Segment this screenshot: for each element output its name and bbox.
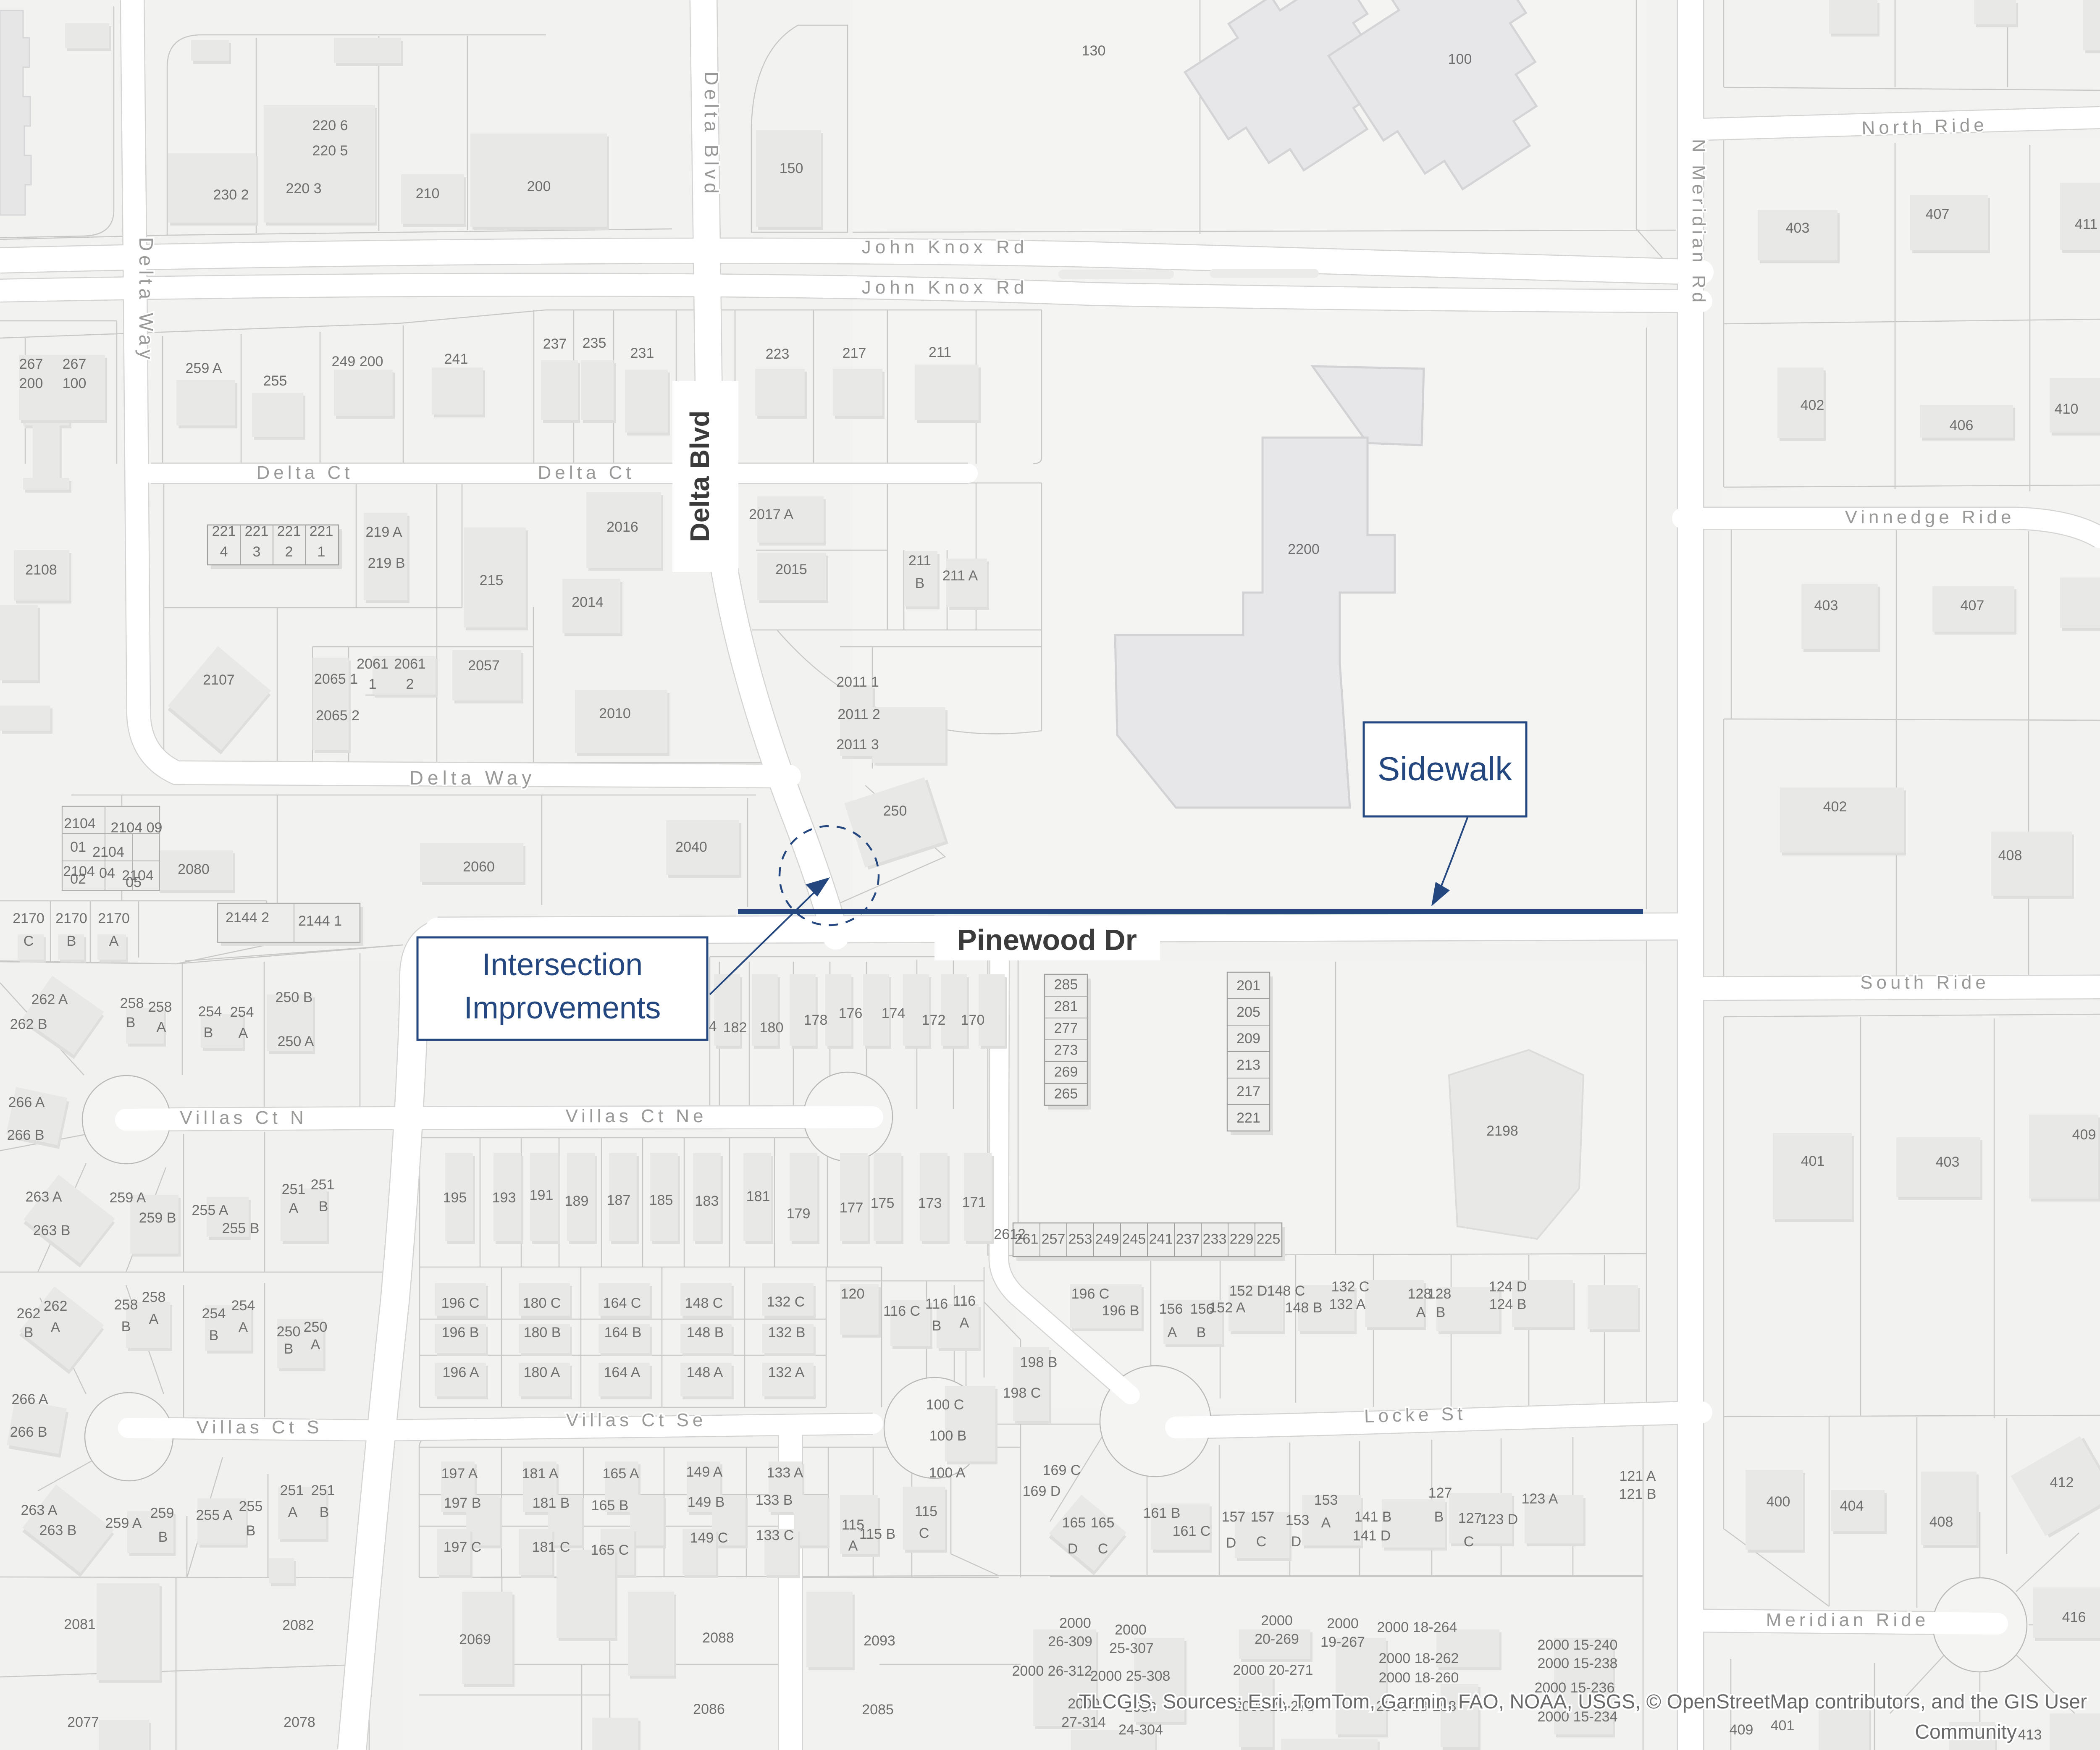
svg-text:233: 233 — [1203, 1231, 1227, 1247]
svg-text:211: 211 — [929, 344, 951, 360]
svg-text:115 B: 115 B — [859, 1526, 895, 1542]
svg-text:128: 128 — [1428, 1286, 1452, 1302]
svg-text:Delta Way: Delta Way — [135, 237, 157, 363]
svg-text:170: 170 — [961, 1012, 985, 1028]
svg-text:C: C — [1464, 1534, 1474, 1550]
svg-text:255 A: 255 A — [196, 1507, 233, 1523]
svg-text:267: 267 — [19, 356, 43, 372]
svg-text:133 C: 133 C — [756, 1527, 794, 1543]
svg-text:100 A: 100 A — [929, 1465, 966, 1481]
svg-text:408: 408 — [1929, 1514, 1953, 1530]
svg-text:116: 116 — [925, 1296, 948, 1312]
svg-text:2017 A: 2017 A — [749, 506, 793, 522]
svg-text:John Knox Rd: John Knox Rd — [862, 237, 1028, 257]
svg-text:Delta Way: Delta Way — [409, 767, 535, 789]
svg-text:2015: 2015 — [775, 561, 807, 577]
svg-text:209: 209 — [1236, 1031, 1260, 1047]
svg-text:165: 165 — [1091, 1515, 1115, 1531]
svg-text:A: A — [848, 1538, 858, 1554]
svg-text:189: 189 — [565, 1193, 589, 1209]
svg-text:100: 100 — [63, 375, 87, 391]
svg-text:B: B — [209, 1328, 219, 1343]
svg-text:180 A: 180 A — [524, 1364, 560, 1380]
svg-text:2000 15-238: 2000 15-238 — [1538, 1656, 1618, 1671]
svg-text:133 A: 133 A — [767, 1465, 803, 1481]
svg-text:258: 258 — [120, 995, 144, 1011]
svg-text:169 D: 169 D — [1023, 1483, 1061, 1499]
svg-text:A: A — [1321, 1515, 1331, 1531]
svg-text:2: 2 — [285, 544, 293, 560]
svg-text:2060: 2060 — [463, 859, 495, 875]
svg-text:Delta Ct: Delta Ct — [538, 462, 635, 483]
svg-text:B: B — [246, 1523, 256, 1539]
svg-text:185: 185 — [649, 1192, 673, 1208]
svg-text:121 B: 121 B — [1619, 1486, 1656, 1502]
svg-text:B: B — [126, 1015, 136, 1031]
svg-text:1: 1 — [369, 676, 377, 692]
svg-text:180 B: 180 B — [524, 1325, 561, 1341]
svg-text:2061: 2061 — [357, 656, 388, 672]
svg-text:220 3: 220 3 — [286, 181, 321, 197]
svg-text:180 C: 180 C — [523, 1295, 561, 1311]
svg-text:181: 181 — [746, 1189, 770, 1204]
svg-text:402: 402 — [1823, 799, 1847, 815]
svg-text:254: 254 — [198, 1004, 222, 1020]
svg-text:121 A: 121 A — [1620, 1468, 1656, 1484]
svg-text:B: B — [158, 1529, 168, 1545]
svg-text:266 A: 266 A — [8, 1094, 45, 1110]
svg-text:230 2: 230 2 — [213, 187, 249, 203]
svg-text:177: 177 — [840, 1200, 864, 1216]
svg-text:250 B: 250 B — [276, 989, 313, 1005]
svg-text:250: 250 — [304, 1319, 328, 1335]
svg-text:259: 259 — [150, 1505, 174, 1521]
svg-text:193: 193 — [492, 1190, 516, 1206]
svg-text:221: 221 — [1236, 1110, 1260, 1126]
svg-text:404: 404 — [1840, 1498, 1864, 1514]
svg-text:409: 409 — [1730, 1722, 1753, 1738]
svg-text:Delta Ct: Delta Ct — [257, 462, 354, 483]
svg-text:2011 2: 2011 2 — [837, 706, 880, 722]
svg-text:Villas Ct Se: Villas Ct Se — [566, 1410, 707, 1430]
svg-text:2200: 2200 — [1288, 541, 1320, 557]
svg-text:123 A: 123 A — [1522, 1491, 1558, 1507]
svg-text:250: 250 — [277, 1324, 301, 1340]
svg-text:North Ride: North Ride — [1861, 115, 1988, 139]
svg-text:258: 258 — [148, 999, 172, 1015]
svg-text:221: 221 — [310, 523, 333, 539]
svg-text:148 B: 148 B — [1285, 1300, 1323, 1316]
svg-text:2014: 2014 — [572, 594, 604, 610]
svg-text:B: B — [1434, 1509, 1444, 1525]
svg-text:2104: 2104 — [92, 844, 124, 860]
svg-text:266 B: 266 B — [10, 1424, 47, 1440]
svg-text:2011 1: 2011 1 — [836, 674, 879, 690]
svg-text:2000 26-312: 2000 26-312 — [1012, 1663, 1092, 1679]
svg-text:25-307: 25-307 — [1109, 1640, 1154, 1656]
svg-text:259 A: 259 A — [105, 1515, 142, 1531]
svg-text:164 C: 164 C — [603, 1295, 641, 1311]
svg-text:217: 217 — [1236, 1084, 1260, 1099]
svg-text:141 D: 141 D — [1353, 1528, 1391, 1544]
svg-text:196 B: 196 B — [442, 1325, 479, 1341]
svg-text:403: 403 — [1786, 220, 1810, 236]
svg-text:411: 411 — [2075, 216, 2097, 232]
svg-text:100 C: 100 C — [926, 1397, 964, 1413]
svg-text:B: B — [915, 575, 925, 591]
svg-text:133 B: 133 B — [756, 1492, 793, 1508]
svg-text:A: A — [960, 1315, 969, 1331]
svg-text:180: 180 — [760, 1020, 784, 1036]
svg-text:262: 262 — [17, 1306, 41, 1322]
svg-text:04: 04 — [99, 865, 115, 881]
svg-text:412: 412 — [2050, 1475, 2074, 1490]
svg-text:2065 2: 2065 2 — [316, 708, 360, 724]
svg-text:157: 157 — [1222, 1509, 1246, 1525]
svg-text:2104 09: 2104 09 — [111, 820, 163, 836]
svg-text:259 A: 259 A — [110, 1190, 146, 1206]
svg-text:124 B: 124 B — [1489, 1296, 1527, 1312]
svg-text:A: A — [311, 1337, 320, 1353]
svg-text:148 B: 148 B — [687, 1325, 724, 1341]
svg-text:254: 254 — [230, 1004, 254, 1020]
svg-text:20-269: 20-269 — [1255, 1631, 1299, 1647]
svg-text:132 A: 132 A — [1329, 1296, 1366, 1312]
svg-text:255: 255 — [239, 1498, 263, 1514]
svg-text:2088: 2088 — [702, 1630, 734, 1646]
svg-text:C: C — [1098, 1541, 1108, 1557]
svg-text:26-309: 26-309 — [1048, 1634, 1092, 1650]
svg-text:148 C: 148 C — [1267, 1283, 1305, 1299]
svg-text:Sidewalk: Sidewalk — [1378, 750, 1512, 787]
svg-text:250 A: 250 A — [278, 1034, 314, 1049]
svg-text:2000: 2000 — [1327, 1616, 1359, 1632]
svg-text:2170: 2170 — [55, 910, 87, 926]
svg-text:251: 251 — [311, 1482, 335, 1498]
svg-text:196 C: 196 C — [1071, 1286, 1110, 1302]
svg-text:D: D — [1068, 1541, 1078, 1557]
svg-text:259 B: 259 B — [139, 1210, 176, 1226]
svg-text:221: 221 — [245, 523, 269, 539]
svg-text:127: 127 — [1428, 1485, 1452, 1501]
svg-text:249: 249 — [1095, 1231, 1119, 1247]
svg-text:01: 01 — [70, 839, 86, 855]
svg-text:400: 400 — [1767, 1494, 1790, 1510]
svg-text:171: 171 — [962, 1194, 986, 1210]
svg-text:Delta Blvd: Delta Blvd — [685, 411, 715, 542]
svg-text:201: 201 — [1236, 978, 1260, 994]
svg-text:2144 1: 2144 1 — [298, 913, 342, 929]
svg-text:2170: 2170 — [98, 910, 130, 926]
svg-text:A: A — [289, 1200, 299, 1216]
svg-text:410: 410 — [2055, 401, 2079, 417]
svg-text:Villas Ct N: Villas Ct N — [180, 1107, 307, 1128]
svg-text:196 C: 196 C — [441, 1295, 480, 1311]
svg-text:Villas Ct S: Villas Ct S — [196, 1417, 323, 1438]
svg-text:164 A: 164 A — [604, 1364, 640, 1380]
svg-text:2040: 2040 — [675, 839, 707, 855]
svg-text:220 5: 220 5 — [312, 143, 348, 159]
svg-text:19-267: 19-267 — [1320, 1634, 1365, 1650]
svg-text:2198: 2198 — [1486, 1123, 1518, 1139]
svg-text:176: 176 — [839, 1005, 863, 1021]
svg-text:2612: 2612 — [994, 1226, 1026, 1242]
svg-text:B: B — [320, 1504, 329, 1520]
svg-text:A: A — [109, 933, 119, 949]
svg-text:2104: 2104 — [64, 816, 96, 832]
svg-text:3: 3 — [253, 544, 261, 560]
svg-text:215: 215 — [480, 572, 504, 588]
svg-text:161 C: 161 C — [1173, 1523, 1211, 1539]
svg-text:2016: 2016 — [606, 519, 638, 535]
svg-text:165: 165 — [1062, 1515, 1086, 1531]
svg-text:116: 116 — [953, 1293, 976, 1309]
svg-text:2010: 2010 — [599, 706, 631, 722]
svg-text:241: 241 — [444, 351, 468, 367]
svg-text:TLCGIS, Sources: Esri, TomTom,: TLCGIS, Sources: Esri, TomTom, Garmin, F… — [1079, 1691, 2087, 1713]
svg-text:403: 403 — [1814, 598, 1838, 614]
svg-text:2000 18-264: 2000 18-264 — [1377, 1619, 1457, 1635]
svg-text:251: 251 — [280, 1482, 304, 1498]
svg-text:B: B — [121, 1319, 131, 1335]
svg-text:124 D: 124 D — [1489, 1279, 1527, 1295]
svg-text:B: B — [24, 1325, 34, 1341]
svg-text:237: 237 — [543, 336, 567, 352]
svg-text:150: 150 — [780, 160, 803, 176]
svg-text:200: 200 — [527, 178, 551, 194]
svg-text:169 C: 169 C — [1043, 1462, 1081, 1478]
svg-text:2000: 2000 — [1059, 1615, 1091, 1631]
svg-text:120: 120 — [841, 1286, 865, 1302]
svg-text:2081: 2081 — [64, 1616, 96, 1632]
svg-text:183: 183 — [695, 1193, 719, 1209]
svg-text:245: 245 — [1122, 1231, 1146, 1247]
svg-text:John Knox Rd: John Knox Rd — [862, 277, 1028, 298]
svg-text:2000 20-271: 2000 20-271 — [1233, 1662, 1313, 1678]
svg-text:196 A: 196 A — [443, 1364, 479, 1380]
svg-text:406: 406 — [1950, 417, 1974, 433]
svg-text:156: 156 — [1159, 1301, 1183, 1317]
svg-text:221: 221 — [212, 523, 236, 539]
svg-text:A: A — [288, 1504, 298, 1520]
svg-text:257: 257 — [1042, 1231, 1066, 1247]
svg-text:255: 255 — [263, 373, 287, 389]
svg-text:B: B — [284, 1341, 294, 1357]
svg-text:B: B — [1436, 1304, 1446, 1320]
svg-text:263 B: 263 B — [33, 1223, 71, 1238]
svg-text:229: 229 — [1230, 1231, 1254, 1247]
svg-text:409: 409 — [2072, 1127, 2096, 1143]
svg-text:251: 251 — [282, 1181, 306, 1197]
svg-text:149 C: 149 C — [690, 1530, 728, 1546]
svg-text:262: 262 — [44, 1298, 68, 1314]
svg-text:A: A — [1416, 1304, 1426, 1320]
svg-text:407: 407 — [1961, 598, 1984, 614]
svg-text:191: 191 — [530, 1187, 554, 1203]
svg-text:225: 225 — [1257, 1231, 1281, 1247]
svg-text:172: 172 — [922, 1012, 946, 1028]
svg-text:217: 217 — [843, 345, 866, 361]
svg-text:2000 25-308: 2000 25-308 — [1090, 1668, 1171, 1684]
svg-text:132 A: 132 A — [768, 1364, 805, 1380]
svg-text:211: 211 — [908, 553, 931, 569]
svg-text:2077: 2077 — [67, 1714, 99, 1730]
svg-text:2000: 2000 — [1115, 1622, 1147, 1638]
svg-text:267: 267 — [63, 356, 87, 372]
svg-text:413: 413 — [2018, 1727, 2042, 1743]
svg-text:141 B: 141 B — [1354, 1509, 1392, 1525]
svg-text:175: 175 — [871, 1195, 895, 1211]
svg-text:181 A: 181 A — [522, 1466, 559, 1482]
svg-text:181 B: 181 B — [533, 1495, 570, 1511]
svg-text:24-304: 24-304 — [1118, 1722, 1163, 1738]
svg-text:266 B: 266 B — [7, 1127, 45, 1143]
svg-text:263 B: 263 B — [39, 1522, 77, 1538]
svg-text:2057: 2057 — [468, 658, 500, 674]
svg-text:285: 285 — [1054, 976, 1078, 992]
svg-text:161 B: 161 B — [1143, 1505, 1181, 1521]
svg-text:223: 223 — [766, 346, 790, 362]
svg-text:178: 178 — [804, 1012, 828, 1028]
svg-text:115: 115 — [915, 1503, 937, 1519]
svg-text:165 C: 165 C — [591, 1542, 629, 1558]
svg-text:197 B: 197 B — [444, 1495, 481, 1511]
svg-text:1: 1 — [318, 544, 325, 560]
svg-text:149 A: 149 A — [686, 1464, 723, 1480]
svg-text:262 A: 262 A — [31, 992, 68, 1007]
svg-text:402: 402 — [1801, 397, 1824, 413]
svg-text:B: B — [204, 1025, 213, 1041]
svg-text:277: 277 — [1054, 1020, 1078, 1036]
svg-text:Meridian Ride: Meridian Ride — [1766, 1610, 1929, 1630]
svg-text:241: 241 — [1149, 1231, 1173, 1247]
svg-text:401: 401 — [1801, 1153, 1825, 1169]
svg-text:219 B: 219 B — [368, 555, 405, 571]
svg-text:2069: 2069 — [459, 1632, 491, 1648]
svg-text:2065 1: 2065 1 — [314, 671, 358, 687]
svg-text:255 A: 255 A — [192, 1202, 228, 1218]
svg-text:196 B: 196 B — [1102, 1303, 1139, 1319]
svg-text:Community: Community — [1915, 1721, 2017, 1743]
svg-text:198 B: 198 B — [1020, 1354, 1058, 1370]
svg-text:403: 403 — [1936, 1154, 1960, 1170]
svg-text:148 A: 148 A — [687, 1364, 723, 1380]
svg-text:250: 250 — [883, 803, 907, 819]
svg-text:123 D: 123 D — [1480, 1511, 1518, 1527]
svg-text:164 B: 164 B — [604, 1325, 642, 1341]
svg-text:152 A: 152 A — [1209, 1300, 1246, 1316]
svg-text:A: A — [51, 1320, 60, 1335]
svg-text:D: D — [1291, 1534, 1302, 1550]
svg-text:179: 179 — [787, 1206, 811, 1222]
svg-text:2000 18-260: 2000 18-260 — [1379, 1670, 1459, 1686]
svg-text:258: 258 — [114, 1297, 138, 1313]
svg-text:2086: 2086 — [693, 1701, 725, 1717]
svg-text:269: 269 — [1054, 1064, 1078, 1080]
svg-text:A: A — [1168, 1325, 1177, 1341]
svg-text:265: 265 — [1054, 1086, 1078, 1102]
svg-text:2082: 2082 — [282, 1617, 314, 1633]
svg-text:148 C: 148 C — [685, 1295, 723, 1311]
svg-text:259 A: 259 A — [186, 360, 222, 376]
svg-text:263 A: 263 A — [26, 1189, 62, 1205]
svg-text:C: C — [24, 933, 34, 949]
svg-text:205: 205 — [1236, 1004, 1260, 1020]
svg-text:181 C: 181 C — [532, 1539, 570, 1555]
svg-text:198 C: 198 C — [1003, 1385, 1041, 1401]
svg-text:2000 18-262: 2000 18-262 — [1379, 1650, 1459, 1666]
svg-text:132 B: 132 B — [768, 1325, 806, 1341]
svg-text:132 C: 132 C — [767, 1294, 805, 1310]
svg-text:220 6: 220 6 — [312, 118, 348, 134]
svg-text:127: 127 — [1458, 1510, 1482, 1526]
svg-text:4: 4 — [220, 544, 228, 560]
svg-text:B: B — [319, 1199, 328, 1215]
svg-text:197 C: 197 C — [444, 1539, 482, 1555]
svg-text:2085: 2085 — [862, 1702, 894, 1718]
svg-text:254: 254 — [231, 1298, 255, 1314]
svg-text:C: C — [1256, 1534, 1267, 1550]
svg-text:100: 100 — [1448, 51, 1472, 67]
svg-text:2080: 2080 — [178, 861, 210, 877]
svg-text:153: 153 — [1286, 1512, 1310, 1528]
svg-text:2093: 2093 — [864, 1633, 895, 1649]
svg-text:D: D — [1226, 1535, 1236, 1551]
svg-text:263 A: 263 A — [21, 1502, 58, 1518]
svg-text:231: 231 — [630, 345, 654, 361]
svg-text:255 B: 255 B — [222, 1220, 260, 1236]
svg-text:02: 02 — [70, 871, 86, 887]
svg-text:187: 187 — [607, 1192, 631, 1208]
svg-text:165 B: 165 B — [591, 1498, 629, 1514]
svg-text:251: 251 — [311, 1177, 335, 1193]
svg-text:174: 174 — [882, 1005, 906, 1021]
svg-text:Delta Blvd: Delta Blvd — [701, 71, 722, 197]
svg-text:132 C: 132 C — [1331, 1279, 1370, 1295]
svg-text:05: 05 — [126, 874, 142, 890]
svg-text:South Ride: South Ride — [1860, 972, 1990, 993]
svg-text:A: A — [239, 1025, 248, 1041]
svg-text:235: 235 — [583, 335, 606, 351]
svg-text:C: C — [919, 1525, 929, 1541]
svg-text:2000: 2000 — [1261, 1613, 1293, 1629]
svg-text:Improvements: Improvements — [464, 990, 661, 1025]
svg-text:Intersection: Intersection — [482, 947, 643, 982]
svg-text:2108: 2108 — [25, 562, 57, 578]
svg-text:210: 210 — [416, 186, 440, 202]
svg-text:200: 200 — [19, 375, 43, 391]
svg-text:165 A: 165 A — [603, 1466, 639, 1482]
svg-text:152 D: 152 D — [1229, 1283, 1268, 1299]
svg-text:130: 130 — [1082, 43, 1106, 59]
svg-text:253: 253 — [1068, 1231, 1092, 1247]
svg-text:197 A: 197 A — [441, 1466, 478, 1482]
svg-text:A: A — [149, 1311, 159, 1327]
svg-text:262 B: 262 B — [10, 1016, 47, 1032]
svg-text:153: 153 — [1314, 1492, 1338, 1508]
svg-text:Villas Ct Ne: Villas Ct Ne — [565, 1106, 707, 1126]
svg-text:B: B — [67, 933, 76, 949]
svg-text:116 C: 116 C — [883, 1303, 920, 1319]
svg-text:A: A — [157, 1019, 166, 1035]
svg-text:2170: 2170 — [13, 910, 45, 926]
svg-text:2061: 2061 — [394, 656, 426, 672]
svg-text:Pinewood Dr: Pinewood Dr — [957, 924, 1137, 956]
svg-text:A: A — [239, 1320, 248, 1335]
svg-text:254: 254 — [202, 1306, 226, 1322]
svg-text:B: B — [1197, 1325, 1206, 1341]
svg-text:2144 2: 2144 2 — [226, 910, 269, 926]
